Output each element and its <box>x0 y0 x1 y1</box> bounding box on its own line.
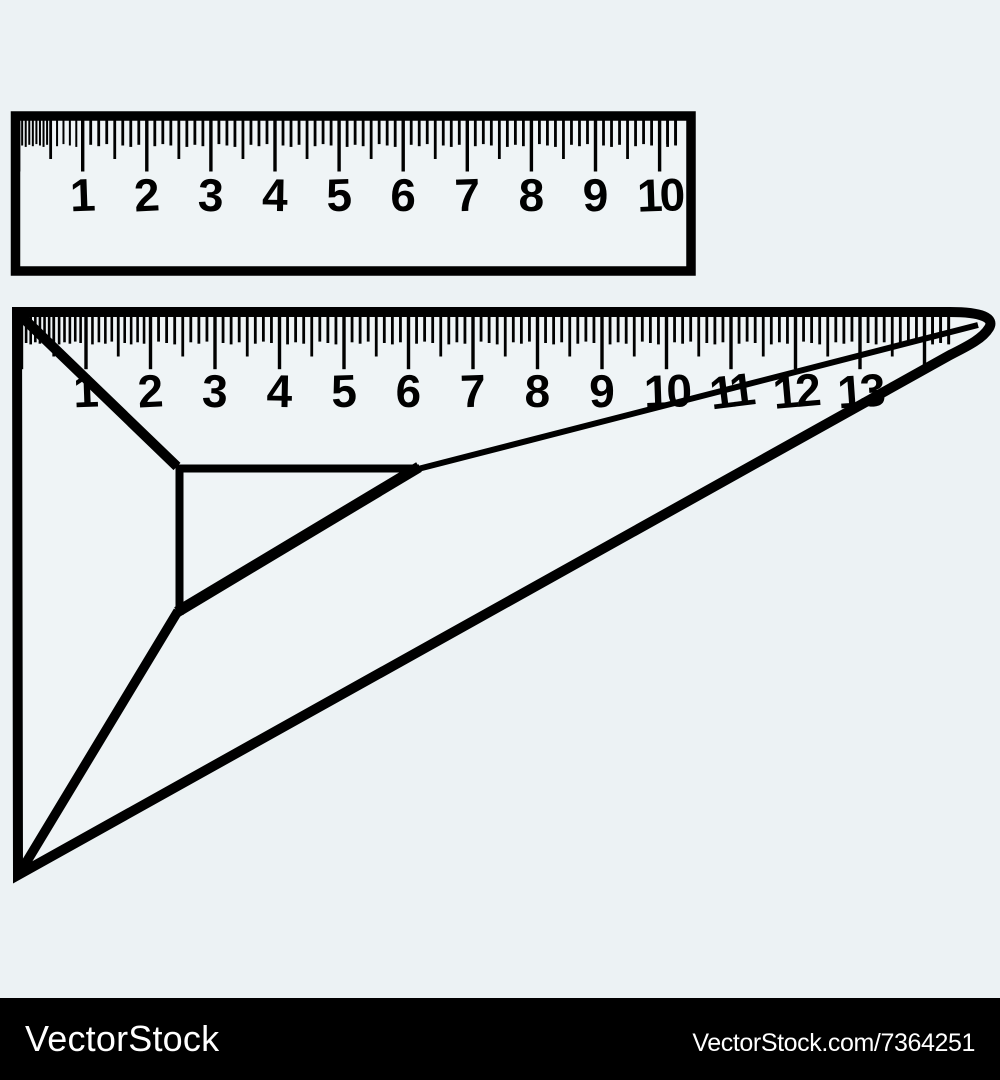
svg-text:8: 8 <box>518 169 544 221</box>
svg-text:5: 5 <box>330 365 357 418</box>
svg-text:2: 2 <box>133 168 161 221</box>
svg-text:9: 9 <box>582 169 608 221</box>
svg-text:9: 9 <box>589 365 615 417</box>
svg-text:12: 12 <box>771 363 822 419</box>
svg-text:8: 8 <box>524 365 550 417</box>
svg-text:10: 10 <box>643 364 691 418</box>
svg-text:2: 2 <box>136 364 164 417</box>
svg-text:6: 6 <box>395 365 422 418</box>
svg-text:1: 1 <box>69 169 96 222</box>
svg-text:10: 10 <box>636 168 684 222</box>
svg-text:3: 3 <box>201 365 228 418</box>
svg-text:7: 7 <box>459 365 486 418</box>
svg-text:6: 6 <box>390 169 417 222</box>
svg-text:4: 4 <box>262 169 289 221</box>
svg-text:3: 3 <box>197 169 224 222</box>
svg-text:7: 7 <box>454 169 481 222</box>
svg-text:5: 5 <box>325 169 352 222</box>
svg-text:13: 13 <box>836 363 886 418</box>
svg-text:4: 4 <box>266 365 293 417</box>
